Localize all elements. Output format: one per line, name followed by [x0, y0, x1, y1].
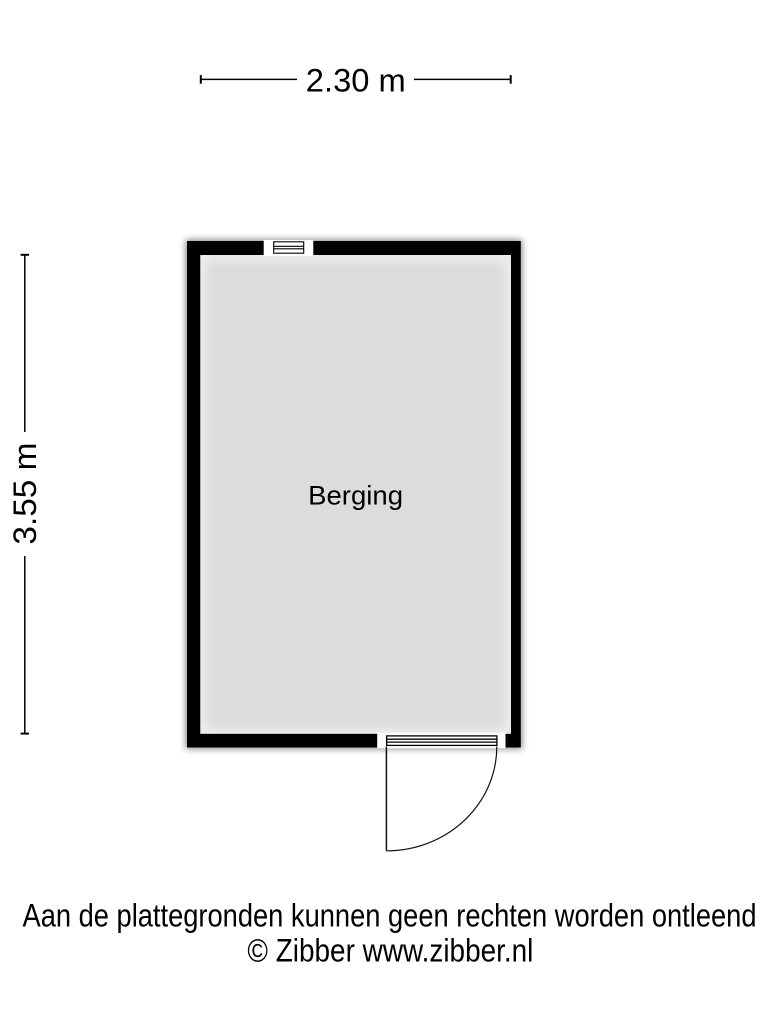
- svg-text:2.30 m: 2.30 m: [306, 63, 406, 99]
- svg-text:3.55 m: 3.55 m: [7, 443, 43, 545]
- svg-text:Aan de plattegronden kunnen ge: Aan de plattegronden kunnen geen rechten…: [23, 898, 757, 934]
- svg-text:© Zibber www.zibber.nl: © Zibber www.zibber.nl: [247, 933, 533, 969]
- svg-text:Berging: Berging: [308, 481, 403, 511]
